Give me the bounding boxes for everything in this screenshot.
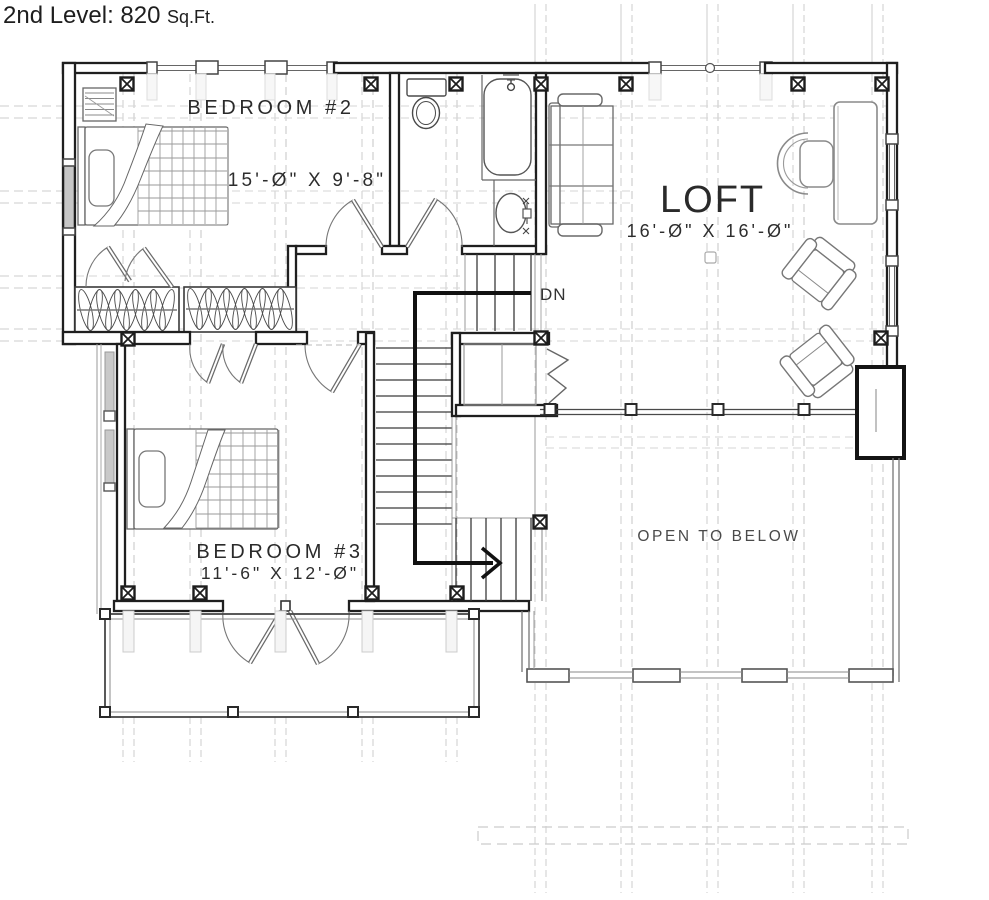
svg-text:Sq.Ft.: Sq.Ft. bbox=[167, 7, 215, 27]
svg-text:OPEN TO BELOW: OPEN TO BELOW bbox=[637, 528, 800, 545]
svg-text:BEDROOM #3: BEDROOM #3 bbox=[196, 541, 363, 563]
svg-text:15'-Ø" X 9'-8": 15'-Ø" X 9'-8" bbox=[228, 170, 386, 191]
svg-text:11'-6" X 12'-Ø": 11'-6" X 12'-Ø" bbox=[201, 563, 359, 583]
svg-text:16'-Ø" X 16'-Ø": 16'-Ø" X 16'-Ø" bbox=[627, 221, 794, 241]
svg-text:LOFT: LOFT bbox=[660, 179, 765, 221]
svg-text:2nd Level: 820: 2nd Level: 820 bbox=[3, 2, 160, 29]
svg-text:DN: DN bbox=[540, 285, 567, 304]
svg-text:BEDROOM #2: BEDROOM #2 bbox=[187, 97, 354, 119]
